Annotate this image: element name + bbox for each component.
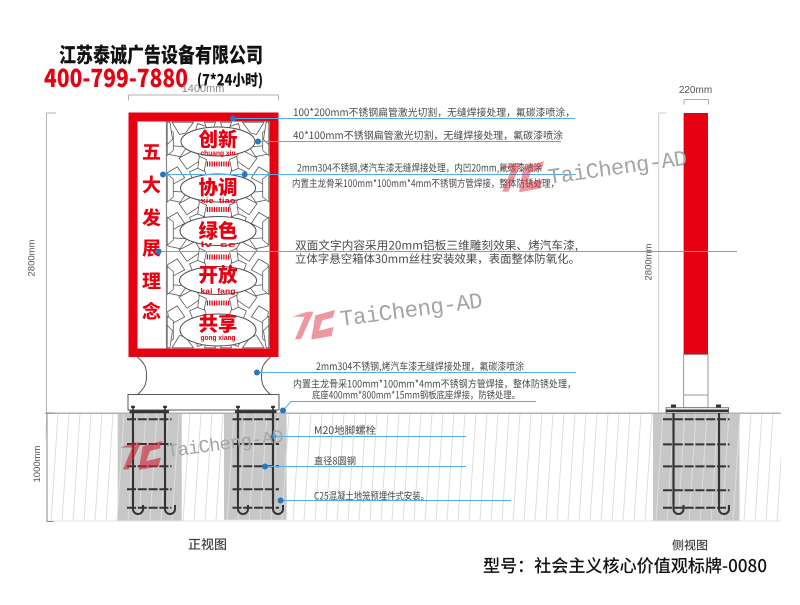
svg-text:lv se: lv se bbox=[201, 240, 236, 249]
svg-text:1400mm: 1400mm bbox=[182, 83, 225, 95]
svg-text:gong xiang: gong xiang bbox=[201, 333, 236, 342]
svg-text:2800mm: 2800mm bbox=[644, 243, 655, 280]
svg-text:TaiCheng-AD: TaiCheng-AD bbox=[546, 147, 688, 191]
svg-text:xie tiao: xie tiao bbox=[201, 196, 237, 205]
svg-text:TaiCheng-AD: TaiCheng-AD bbox=[339, 288, 484, 332]
svg-text:2800mm: 2800mm bbox=[27, 239, 38, 276]
svg-text:1000mm: 1000mm bbox=[32, 445, 43, 482]
svg-text:kai fang: kai fang bbox=[201, 287, 237, 296]
svg-text:220mm: 220mm bbox=[679, 85, 712, 96]
svg-text:chuang xin: chuang xin bbox=[201, 149, 236, 158]
